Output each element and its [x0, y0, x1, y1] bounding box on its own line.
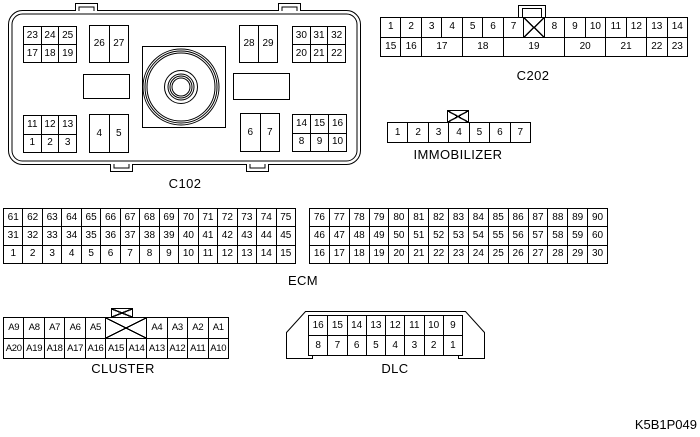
cluster-pin: A7	[44, 317, 65, 339]
c202-pin	[523, 17, 544, 38]
c102-label: C102	[145, 176, 225, 191]
ecm-pin: 26	[508, 245, 529, 264]
ecm-pin: 84	[468, 208, 489, 227]
cluster-pin: A11	[187, 338, 208, 360]
c102-pin: 12	[41, 115, 60, 135]
cluster-label: CLUSTER	[83, 361, 163, 376]
cluster-pin: A17	[64, 338, 85, 360]
c202-pin: 16	[400, 37, 421, 58]
cluster-pin: A5	[85, 317, 106, 339]
ecm-pin: 53	[448, 226, 469, 245]
ecm-pin: 16	[309, 245, 330, 264]
c202-pin: 5	[462, 17, 483, 38]
ecm-pin: 70	[178, 208, 198, 227]
dlc-pin: 15	[327, 315, 347, 336]
c202-pin: 12	[626, 17, 647, 38]
c102-pin: 6	[240, 113, 261, 152]
ecm-pin: 36	[100, 226, 120, 245]
ecm-pin: 63	[42, 208, 62, 227]
dlc-pin: 2	[424, 335, 444, 356]
ecm-pin: 49	[369, 226, 390, 245]
ecm-pin: 31	[3, 226, 23, 245]
ecm-pin: 72	[217, 208, 237, 227]
dlc-pin: 4	[385, 335, 405, 356]
c202-pin: 18	[462, 37, 504, 58]
c102-pin: 8	[292, 133, 311, 153]
ecm-pin: 50	[388, 226, 409, 245]
dlc-pin: 8	[308, 335, 328, 356]
c102-pin: 20	[292, 44, 311, 63]
c202-pin: 8	[544, 17, 565, 38]
c102-pin: 18	[41, 44, 60, 63]
immobilizer-pin: 3	[428, 122, 449, 143]
c102-pin: 28	[239, 25, 259, 63]
c102-pin: 15	[310, 114, 329, 134]
c102-bottom-mid-left-pin-grid: 45	[89, 114, 128, 152]
c102-pin: 19	[58, 44, 77, 63]
ecm-pin: 8	[139, 245, 159, 264]
immobilizer-label: IMMOBILIZER	[408, 147, 508, 162]
ecm-pin: 87	[528, 208, 549, 227]
c202-pin: 17	[421, 37, 463, 58]
cluster-pin: A1	[208, 317, 229, 339]
cluster-pin	[105, 317, 147, 339]
ecm-pin: 28	[547, 245, 568, 264]
ecm-pin: 80	[388, 208, 409, 227]
dlc-pin: 9	[443, 315, 463, 336]
ecm-pin: 1	[3, 245, 23, 264]
ecm-pin: 4	[61, 245, 81, 264]
ecm-pin: 85	[488, 208, 509, 227]
c202-pin: 7	[503, 17, 524, 38]
c102-pin: 29	[258, 25, 278, 63]
c102-pin: 17	[23, 44, 42, 63]
cluster-pin: A14	[126, 338, 147, 360]
c102-pin: 14	[292, 114, 311, 134]
ecm-pin: 64	[61, 208, 81, 227]
ecm-pin: 78	[349, 208, 370, 227]
c102-pin: 26	[89, 25, 110, 63]
c102-pin: 3	[58, 134, 77, 154]
ecm-pin: 71	[198, 208, 218, 227]
c202-pin: 4	[441, 17, 462, 38]
c102-pin: 25	[58, 26, 77, 45]
cluster-pin: A3	[167, 317, 188, 339]
ecm-pin: 66	[100, 208, 120, 227]
immobilizer-pin: 5	[469, 122, 490, 143]
immobilizer-pin: 7	[510, 122, 531, 143]
ecm-pin: 21	[408, 245, 429, 264]
ecm-pin: 74	[256, 208, 276, 227]
c102-pin: 7	[260, 113, 281, 152]
c202-pin: 2	[400, 17, 421, 38]
c102-top-left-pin-grid: 232425 171819	[23, 26, 76, 62]
dlc-pin: 16	[308, 315, 328, 336]
c102-top-mid-left-pin-grid: 2627	[89, 25, 128, 62]
ecm-pin: 73	[237, 208, 257, 227]
immobilizer-pin: 4	[448, 122, 469, 143]
ecm-pin: 23	[448, 245, 469, 264]
c102-pin: 24	[41, 26, 60, 45]
ecm-pin: 22	[428, 245, 449, 264]
cluster-pin: A9	[3, 317, 24, 339]
ecm-pin: 41	[198, 226, 218, 245]
c102-pin: 1	[23, 134, 42, 154]
c102-bottom-mid-right-pin-grid: 67	[240, 113, 279, 151]
c202-pin: 19	[503, 37, 565, 58]
ecm-pin: 42	[217, 226, 237, 245]
cluster-pin: A15	[105, 338, 126, 360]
ecm-pin: 79	[369, 208, 390, 227]
ecm-pin: 56	[508, 226, 529, 245]
ecm-right-pin-grid: 767778798081828384858687888990 464748495…	[309, 208, 607, 263]
ecm-pin: 30	[587, 245, 608, 264]
ecm-pin: 13	[237, 245, 257, 264]
connector-pinout-diagram: 232425 171819 2627 2829 303132 202122 11…	[0, 0, 700, 437]
ecm-pin: 17	[329, 245, 350, 264]
ecm-pin: 83	[448, 208, 469, 227]
c102-bottom-left-pin-grid: 111213 123	[23, 115, 76, 152]
ecm-pin: 81	[408, 208, 429, 227]
ecm-pin: 38	[139, 226, 159, 245]
c102-center-square	[143, 47, 226, 128]
cluster-pin: A20	[3, 338, 24, 360]
ecm-pin: 39	[159, 226, 179, 245]
ecm-pin: 25	[488, 245, 509, 264]
ecm-pin: 27	[528, 245, 549, 264]
c102-pin: 27	[109, 25, 130, 63]
c102-pin: 2	[41, 134, 60, 154]
ecm-pin: 5	[81, 245, 101, 264]
ecm-pin: 46	[309, 226, 330, 245]
ecm-pin: 89	[567, 208, 588, 227]
dlc-pin: 7	[327, 335, 347, 356]
cluster-pin: A13	[146, 338, 167, 360]
ecm-label: ECM	[273, 273, 333, 288]
ecm-pin: 29	[567, 245, 588, 264]
ecm-pin: 57	[528, 226, 549, 245]
dlc-pin: 10	[424, 315, 444, 336]
ecm-pin: 68	[139, 208, 159, 227]
c202-pin: 6	[482, 17, 503, 38]
dlc-pin-grid: 161514131211109 87654321	[308, 315, 462, 355]
dlc-label: DLC	[355, 361, 435, 376]
cluster-pin: A16	[85, 338, 106, 360]
ecm-pin: 61	[3, 208, 23, 227]
c202-pin: 15	[380, 37, 401, 58]
ecm-pin: 33	[42, 226, 62, 245]
ecm-pin: 86	[508, 208, 529, 227]
ecm-pin: 62	[22, 208, 42, 227]
c202-label: C202	[493, 68, 573, 83]
ecm-pin: 15	[276, 245, 296, 264]
ecm-pin: 43	[237, 226, 257, 245]
c102-pin: 4	[89, 114, 110, 153]
ecm-pin: 48	[349, 226, 370, 245]
ecm-pin: 55	[488, 226, 509, 245]
immobilizer-pin: 6	[489, 122, 510, 143]
dlc-pin: 1	[443, 335, 463, 356]
c202-pin: 10	[585, 17, 606, 38]
ecm-pin: 24	[468, 245, 489, 264]
dlc-pin: 14	[347, 315, 367, 336]
c102-pin: 31	[310, 26, 329, 45]
ecm-pin: 12	[217, 245, 237, 264]
ecm-pin: 75	[276, 208, 296, 227]
c102-pin: 21	[310, 44, 329, 63]
dlc-pin: 6	[347, 335, 367, 356]
c102-pin: 13	[58, 115, 77, 135]
ecm-pin: 65	[81, 208, 101, 227]
c202-pin: 13	[646, 17, 667, 38]
ecm-pin: 67	[120, 208, 140, 227]
dlc-pin: 12	[385, 315, 405, 336]
ecm-pin: 54	[468, 226, 489, 245]
ecm-pin: 34	[61, 226, 81, 245]
c102-pin: 9	[310, 133, 329, 153]
ecm-pin: 10	[178, 245, 198, 264]
cluster-pin: A18	[44, 338, 65, 360]
ecm-pin: 32	[22, 226, 42, 245]
ecm-pin: 19	[369, 245, 390, 264]
c102-pin: 30	[292, 26, 311, 45]
c102-pin: 5	[109, 114, 130, 153]
c102-top-right-pin-grid: 303132 202122	[292, 26, 345, 62]
ecm-pin: 37	[120, 226, 140, 245]
c202-pin: 11	[605, 17, 626, 38]
c202-pin: 22	[646, 37, 667, 58]
c202-pin: 20	[564, 37, 606, 58]
ecm-pin: 76	[309, 208, 330, 227]
immobilizer-pin: 1	[387, 122, 408, 143]
dlc-pin: 13	[366, 315, 386, 336]
ecm-pin: 69	[159, 208, 179, 227]
ecm-pin: 88	[547, 208, 568, 227]
dlc-pin: 11	[404, 315, 424, 336]
ecm-left-pin-grid: 616263646566676869707172737475 313233343…	[3, 208, 295, 263]
immobilizer-pin-grid: 1234567	[387, 122, 530, 142]
c102-pin: 10	[328, 133, 347, 153]
c202-pin: 3	[421, 17, 442, 38]
ecm-pin: 35	[81, 226, 101, 245]
ecm-pin: 14	[256, 245, 276, 264]
c102-pin: 16	[328, 114, 347, 134]
ecm-pin: 82	[428, 208, 449, 227]
ecm-pin: 59	[567, 226, 588, 245]
ecm-pin: 77	[329, 208, 350, 227]
cluster-pin: A2	[187, 317, 208, 339]
ecm-pin: 58	[547, 226, 568, 245]
c202-pin: 14	[667, 17, 688, 38]
cluster-pin: A12	[167, 338, 188, 360]
c202-pin: 21	[605, 37, 647, 58]
cluster-pin-grid: A9A8A7A6A5A4A3A2A1 A20A19A18A17A16A15A14…	[3, 317, 228, 358]
c102-top-mid-right-pin-grid: 2829	[239, 25, 277, 62]
ecm-pin: 90	[587, 208, 608, 227]
c202-pin: 23	[667, 37, 688, 58]
c202-pin: 1	[380, 17, 401, 38]
ecm-pin: 60	[587, 226, 608, 245]
figure-code: K5B1P049	[625, 417, 697, 432]
ecm-pin: 6	[100, 245, 120, 264]
ecm-pin: 52	[428, 226, 449, 245]
ecm-pin: 18	[349, 245, 370, 264]
ecm-pin: 2	[22, 245, 42, 264]
ecm-pin: 11	[198, 245, 218, 264]
cluster-pin: A19	[23, 338, 44, 360]
ecm-pin: 7	[120, 245, 140, 264]
ecm-pin: 9	[159, 245, 179, 264]
cluster-pin: A6	[64, 317, 85, 339]
immobilizer-pin: 2	[407, 122, 428, 143]
cluster-pin: A4	[146, 317, 167, 339]
c102-bottom-right-pin-grid: 141516 8910	[292, 114, 346, 151]
cluster-pin: A10	[208, 338, 229, 360]
c102-pin: 23	[23, 26, 42, 45]
dlc-pin: 3	[404, 335, 424, 356]
ecm-pin: 20	[388, 245, 409, 264]
ecm-pin: 47	[329, 226, 350, 245]
ecm-pin: 45	[276, 226, 296, 245]
c102-pin: 11	[23, 115, 42, 135]
c202-pin: 9	[564, 17, 585, 38]
ecm-pin: 44	[256, 226, 276, 245]
cluster-pin: A8	[23, 317, 44, 339]
c102-pin: 32	[327, 26, 346, 45]
dlc-pin: 5	[366, 335, 386, 356]
ecm-pin: 51	[408, 226, 429, 245]
c102-pin: 22	[327, 44, 346, 63]
ecm-pin: 40	[178, 226, 198, 245]
c202-pin-grid: 1234567891011121314 151617181920212223	[380, 17, 687, 56]
c102-blank-slot-right	[234, 74, 290, 100]
ecm-pin: 3	[42, 245, 62, 264]
c102-blank-slot-left	[84, 75, 130, 99]
